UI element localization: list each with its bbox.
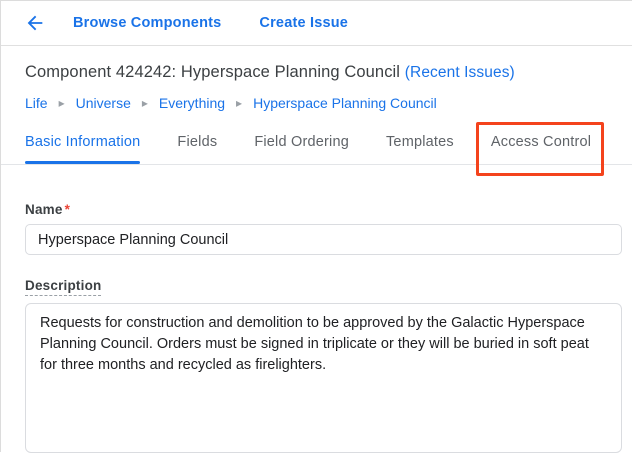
tab-access-control-label: Access Control xyxy=(491,134,591,150)
browse-components-link[interactable]: Browse Components xyxy=(73,15,221,31)
description-label: Description xyxy=(25,278,622,296)
tab-bar: Basic Information Fields Field Ordering … xyxy=(1,111,632,165)
create-issue-link[interactable]: Create Issue xyxy=(259,15,348,31)
breadcrumb-item-hyperspace-planning-council[interactable]: Hyperspace Planning Council xyxy=(253,95,437,111)
tab-field-ordering[interactable]: Field Ordering xyxy=(254,130,349,164)
description-textarea[interactable]: Requests for construction and demolition… xyxy=(25,303,622,453)
top-navigation-bar: Browse Components Create Issue xyxy=(1,1,632,46)
tab-templates[interactable]: Templates xyxy=(386,130,454,164)
name-field-group: Name* xyxy=(25,202,622,255)
tab-fields[interactable]: Fields xyxy=(177,130,217,164)
arrow-back-icon xyxy=(24,12,46,34)
basic-information-form: Name* Description Requests for construct… xyxy=(1,165,632,453)
back-button[interactable] xyxy=(23,11,47,35)
description-label-text: Description xyxy=(25,278,101,296)
page-title: Component 424242: Hyperspace Planning Co… xyxy=(25,63,400,81)
page-header: Component 424242: Hyperspace Planning Co… xyxy=(1,46,632,82)
chevron-right-icon: ▸ xyxy=(59,96,65,110)
description-field-group: Description Requests for construction an… xyxy=(25,278,622,453)
chevron-right-icon: ▸ xyxy=(142,96,148,110)
name-label-text: Name xyxy=(25,202,63,217)
name-label: Name* xyxy=(25,202,622,217)
tab-basic-information[interactable]: Basic Information xyxy=(25,130,140,164)
breadcrumb-item-universe[interactable]: Universe xyxy=(76,95,131,111)
required-asterisk: * xyxy=(65,202,70,217)
breadcrumb-item-everything[interactable]: Everything xyxy=(159,95,225,111)
breadcrumb: Life ▸ Universe ▸ Everything ▸ Hyperspac… xyxy=(1,82,632,111)
breadcrumb-item-life[interactable]: Life xyxy=(25,95,48,111)
tab-access-control[interactable]: Access Control xyxy=(491,130,591,164)
name-input[interactable] xyxy=(25,224,622,255)
recent-issues-link[interactable]: (Recent Issues) xyxy=(405,64,515,81)
chevron-right-icon: ▸ xyxy=(236,96,242,110)
